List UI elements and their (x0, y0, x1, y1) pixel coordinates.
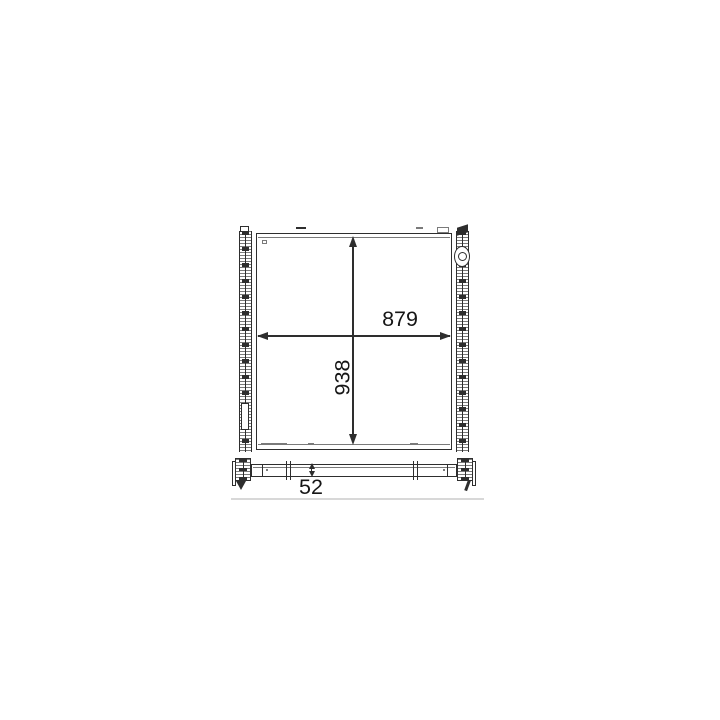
radiator-technical-drawing: 879 938 52 (0, 0, 720, 720)
right-cap-hook (464, 480, 471, 491)
depth-bar-joint-left (262, 464, 263, 477)
right-cap-spine (472, 461, 476, 486)
ground-line (231, 498, 484, 500)
bottom-view: 52 (0, 0, 720, 720)
mount-tick-right (413, 461, 418, 480)
depth-bar-inner-line (253, 467, 455, 468)
pin-dot-left (266, 469, 268, 471)
depth-dimension-label: 52 (288, 477, 334, 498)
depth-arrow-up-icon (309, 463, 315, 469)
depth-bar-joint-right (447, 464, 448, 477)
right-end-cap (457, 458, 473, 481)
depth-bar (251, 464, 457, 477)
pin-dot-right (443, 469, 445, 471)
left-cap-taper (236, 481, 246, 490)
left-end-cap (235, 458, 251, 481)
